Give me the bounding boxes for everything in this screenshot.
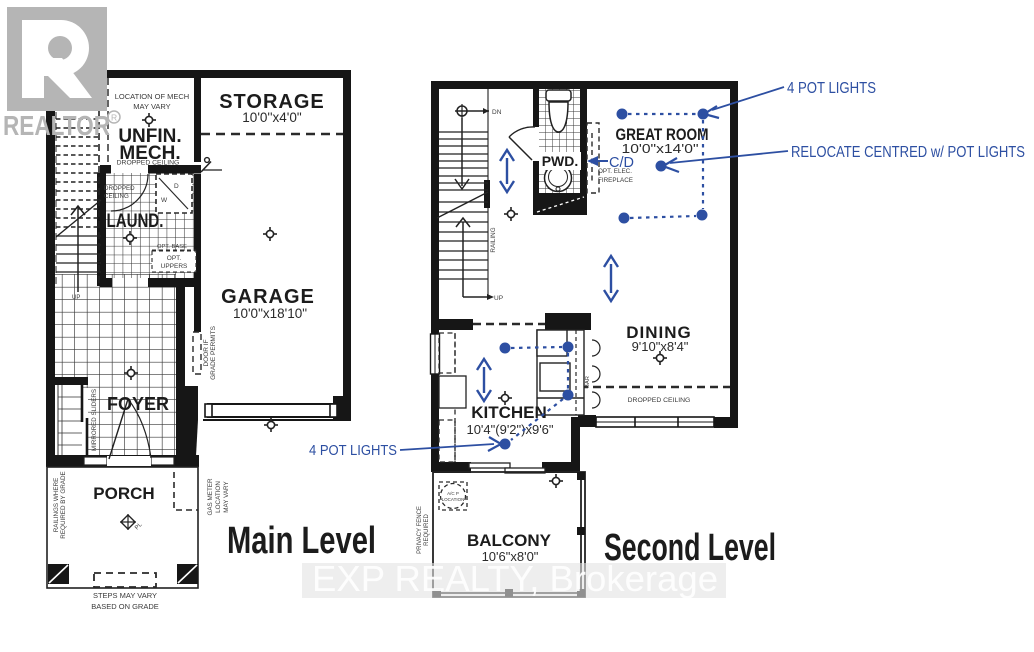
svg-text:REQUIRED: REQUIRED — [424, 513, 430, 545]
svg-text:FIREPLACE: FIREPLACE — [598, 177, 633, 184]
svg-text:BAR: BAR — [585, 376, 591, 388]
svg-text:RAILINGS WHERE: RAILINGS WHERE — [53, 478, 60, 533]
svg-text:EXP REALTY, Brokerage: EXP REALTY, Brokerage — [312, 558, 718, 599]
svg-text:10'0"x18'10": 10'0"x18'10" — [233, 306, 307, 321]
svg-text:CEILING: CEILING — [104, 193, 129, 200]
svg-text:STEPS MAY VARY: STEPS MAY VARY — [93, 591, 157, 600]
svg-text:LOCATION: LOCATION — [215, 481, 222, 513]
svg-text:GAS METER: GAS METER — [207, 478, 214, 516]
svg-text:RELOCATE CENTRED w/ POT LIGHTS: RELOCATE CENTRED w/ POT LIGHTS — [791, 144, 1025, 161]
svg-text:OPT.: OPT. — [167, 255, 182, 262]
svg-text:GARAGE: GARAGE — [221, 286, 315, 308]
svg-text:A/C P: A/C P — [447, 491, 459, 496]
svg-text:4 POT LIGHTS: 4 POT LIGHTS — [309, 443, 397, 459]
svg-text:PRIVACY FENCE: PRIVACY FENCE — [417, 506, 423, 554]
svg-text:C/D: C/D — [609, 155, 634, 171]
svg-text:BASED ON GRADE: BASED ON GRADE — [91, 602, 159, 611]
svg-text:10'0''x4'0": 10'0''x4'0" — [242, 110, 302, 125]
svg-text:R: R — [111, 113, 117, 123]
svg-text:DROPPED: DROPPED — [104, 185, 135, 192]
svg-text:10'4"(9'2")x9'6": 10'4"(9'2")x9'6" — [466, 422, 553, 437]
svg-text:FOYER: FOYER — [107, 394, 169, 414]
svg-text:DOOR IF: DOOR IF — [203, 339, 210, 366]
svg-text:RAILING: RAILING — [490, 227, 497, 252]
svg-text:REQUIRED BY GRADE: REQUIRED BY GRADE — [60, 471, 67, 538]
svg-text:KITCHEN: KITCHEN — [471, 403, 547, 422]
svg-text:MIRRORED SLIDERS: MIRRORED SLIDERS — [91, 389, 98, 451]
svg-text:PL: PL — [134, 522, 144, 532]
svg-text:REALTOR: REALTOR — [3, 110, 110, 141]
svg-text:DROPPED CEILING: DROPPED CEILING — [628, 397, 691, 404]
svg-text:UPPERS: UPPERS — [161, 263, 188, 270]
svg-text:LOCATION OF MECH: LOCATION OF MECH — [115, 92, 189, 101]
svg-text:D: D — [174, 183, 179, 190]
svg-text:Main Level: Main Level — [227, 520, 376, 562]
svg-text:DROPPED CEILING: DROPPED CEILING — [117, 160, 180, 167]
svg-text:PORCH: PORCH — [93, 484, 154, 503]
svg-text:LAUND.: LAUND. — [107, 211, 164, 232]
svg-text:MAY VARY: MAY VARY — [133, 102, 170, 111]
svg-text:OPT. BASE: OPT. BASE — [157, 244, 187, 250]
svg-text:4 POT LIGHTS: 4 POT LIGHTS — [787, 80, 876, 97]
svg-text:PWD.: PWD. — [542, 153, 579, 169]
svg-text:DN: DN — [492, 109, 502, 116]
svg-text:W: W — [161, 197, 168, 204]
svg-text:UP: UP — [72, 295, 80, 301]
svg-text:MAY VARY: MAY VARY — [223, 481, 230, 513]
svg-text:LOCATION: LOCATION — [442, 497, 465, 502]
svg-text:UP: UP — [494, 295, 503, 302]
svg-text:10'0"x14'0": 10'0"x14'0" — [622, 141, 699, 156]
svg-text:BALCONY: BALCONY — [467, 531, 552, 550]
svg-text:GRADE PERMITS: GRADE PERMITS — [210, 325, 217, 379]
